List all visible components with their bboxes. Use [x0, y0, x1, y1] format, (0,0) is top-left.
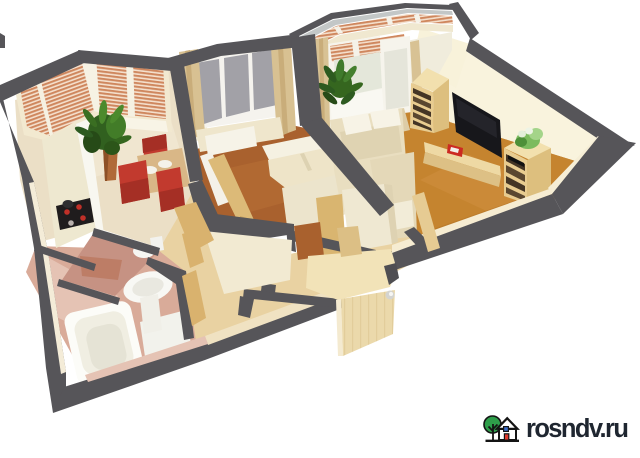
- svg-text:rosndv.ru: rosndv.ru: [526, 415, 627, 443]
